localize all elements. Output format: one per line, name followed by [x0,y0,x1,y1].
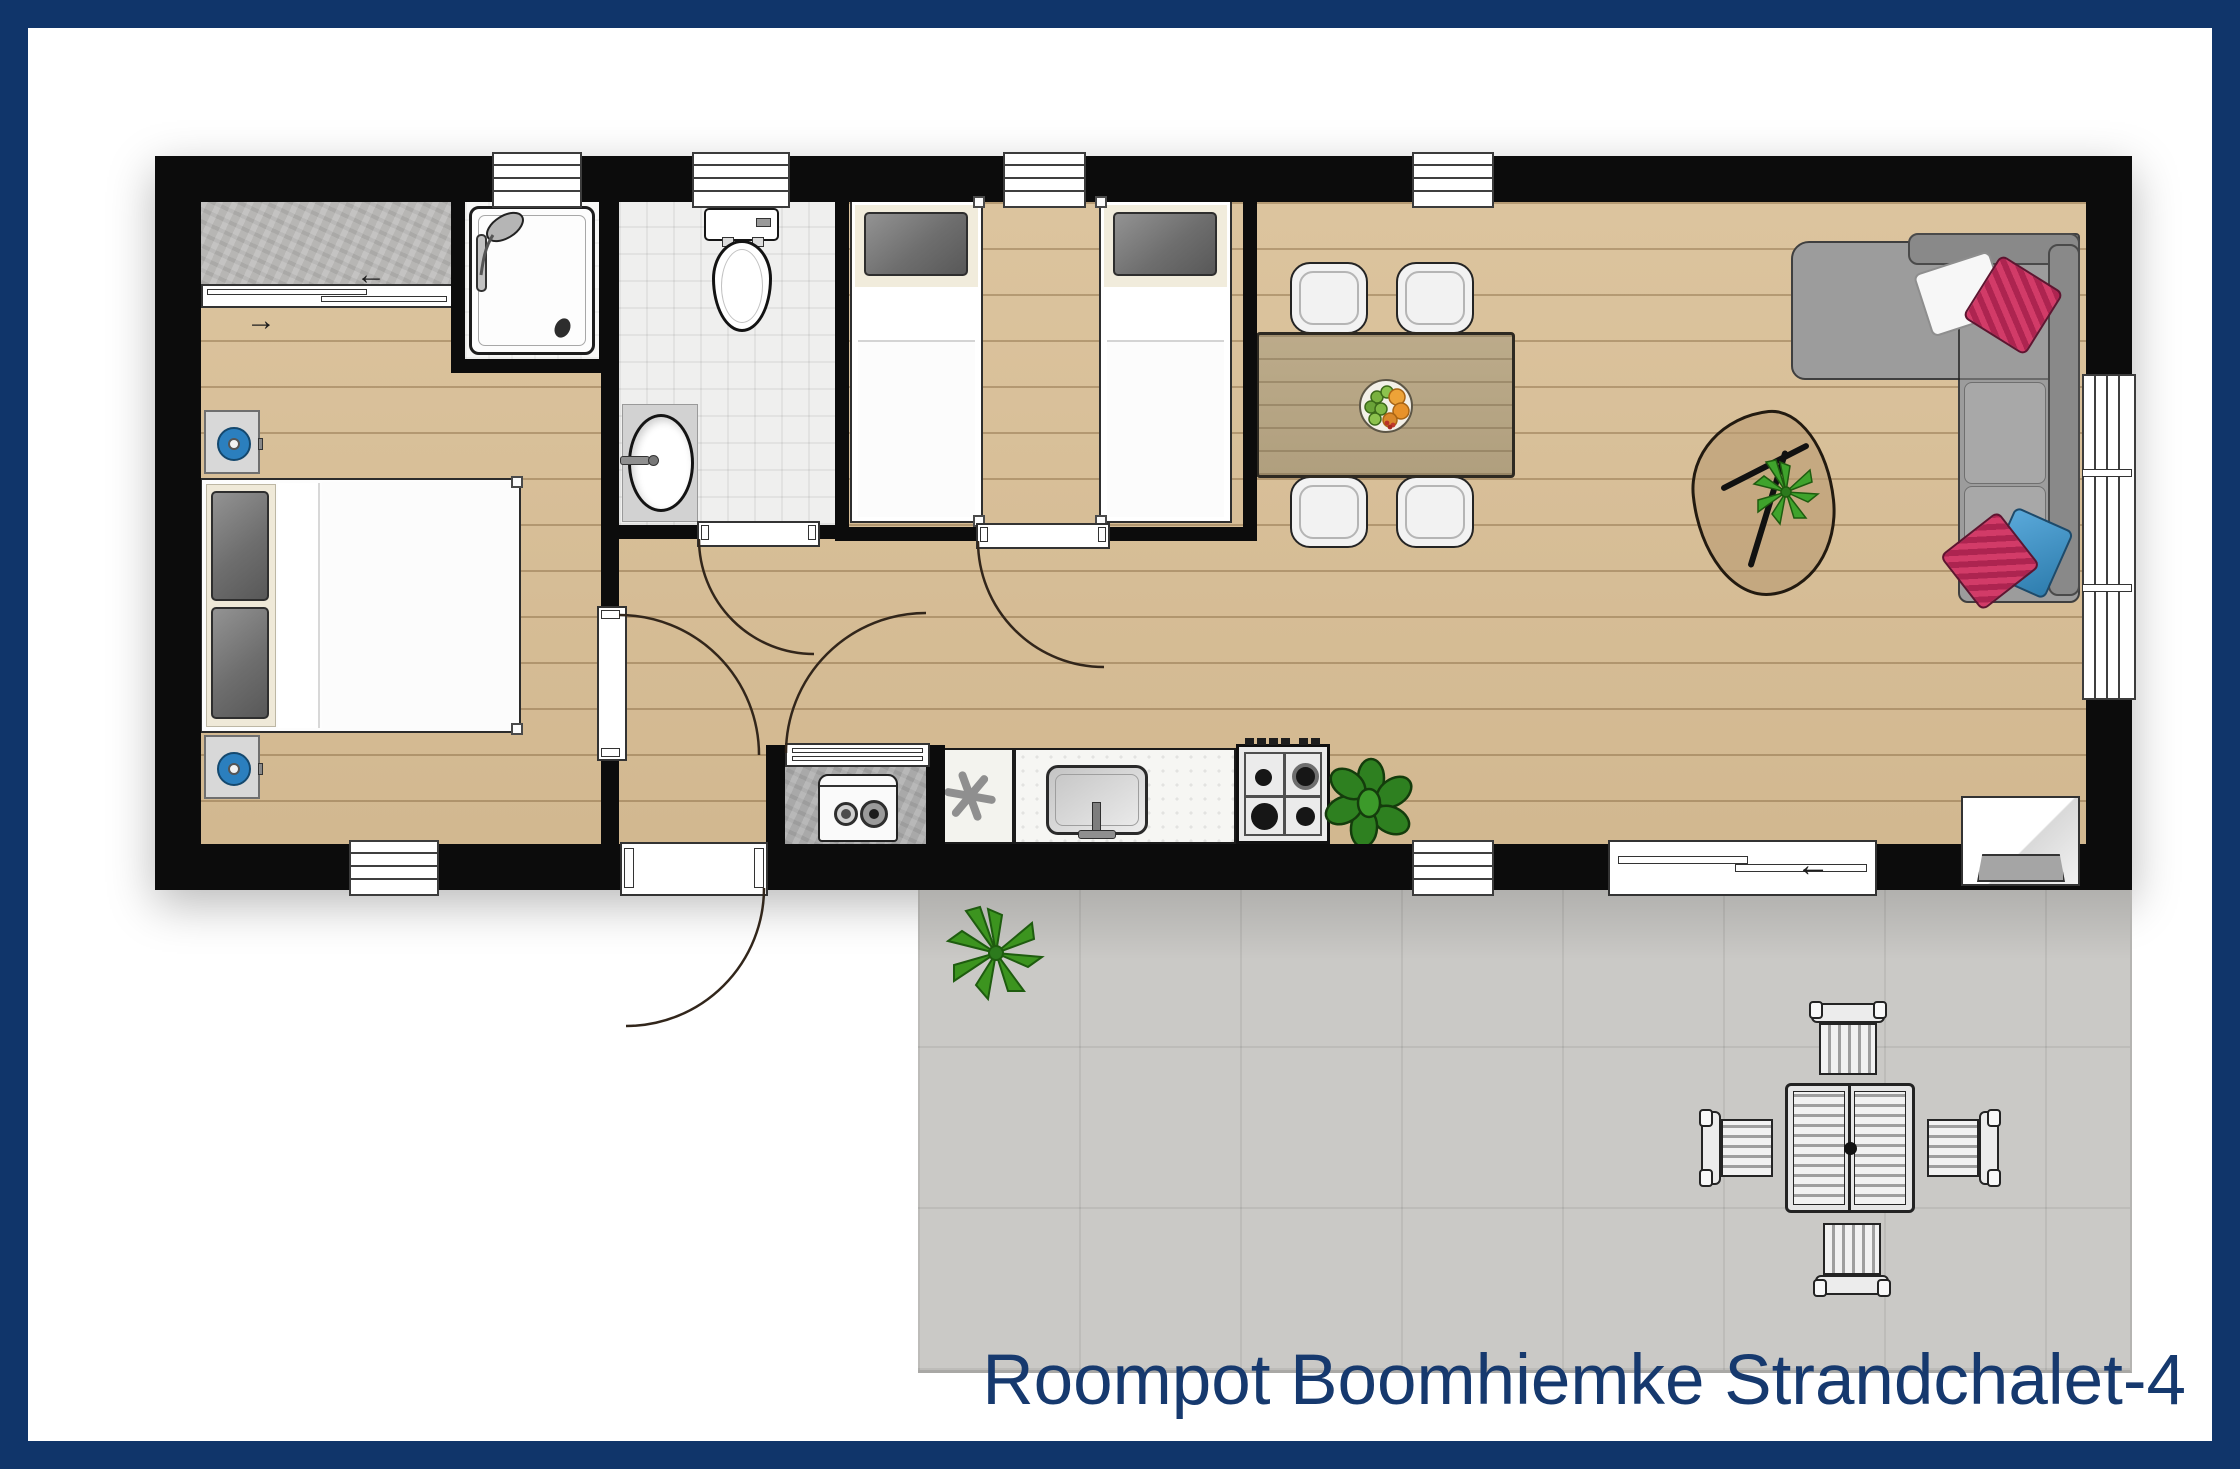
bed-post [511,476,523,488]
coffee-table-plant-icon [1750,456,1822,528]
nightstand-knob [258,763,263,775]
kitchen-counter [1014,748,1236,844]
tv-unit [1961,796,2080,886]
hob-knob [1257,738,1266,745]
boiler-port-dot [869,809,879,819]
patio-umbrella-hole [1844,1142,1857,1155]
door-jamb [1098,527,1106,542]
window-top-shower [492,152,582,208]
utility-door-swing-arc [786,613,926,753]
toilet-flush-button [756,218,771,227]
bed-post [511,723,523,735]
patio-chair-seat [1823,1223,1881,1275]
dining-chair [1396,262,1474,334]
wall-shower-bottom [451,359,619,373]
lamp-center [228,763,240,775]
shower-head-icon [471,209,541,304]
bed-sheet-fold [1107,287,1224,342]
wall-shower-right [599,202,619,373]
patio-chair-post [1987,1169,2001,1187]
hob-knob [1269,738,1278,745]
closet-slide-right-arrow-icon: → [246,306,276,336]
sofa-cushion [1964,382,2046,484]
patio-table-panel [1854,1091,1906,1205]
window-bottom-bedroom1 [349,840,439,896]
window-bottom-kitchen [1412,840,1494,896]
chair-seat [1299,271,1359,325]
bed-duvet [322,482,516,730]
patio-table [1785,1083,1915,1213]
window-right-mullion [2082,584,2132,592]
single-bed [850,200,983,523]
nightstand [204,735,260,799]
hob-burner [1251,803,1278,830]
patio-sliding-door [1608,840,1877,896]
wall-bedroom2-bottom-right [1104,527,1257,541]
bedroom1-door-swing-arc [619,615,759,755]
bed-duvet [858,342,975,517]
bed-pillow [1113,212,1217,276]
hob-burner [1296,807,1315,826]
bed-duvet [1107,342,1224,517]
lamp-center [228,438,240,450]
chair-seat [1405,485,1465,539]
door-jamb [980,527,988,542]
kitchen-plant-icon [1328,762,1414,848]
boiler [818,774,898,842]
wall-left [155,156,201,890]
closet-sliding-door-panel [321,296,447,302]
wall-bedroom2-living [1243,202,1257,541]
hob-burner [1292,763,1319,790]
bed-pillow [211,607,269,719]
boiler-cap-line [820,785,896,787]
patio-table-panel [1793,1091,1845,1205]
hob-grid-cross-v [1283,752,1286,836]
patio-chair-post [1877,1279,1891,1297]
fruit-bowl-icon [1357,377,1415,435]
toilet-seat [721,249,763,323]
sink-faucet-tip [648,455,659,466]
bed-sheet-fold [278,483,320,728]
closet-sliding-door-panel [207,289,367,295]
bed-sheet-fold [858,287,975,342]
front-door-jamb [624,848,634,888]
sofa-seam [1958,378,2048,380]
window-top-bathroom [692,152,790,208]
door-jamb [601,610,620,619]
front-door-jamb [754,848,764,888]
chair-seat [1299,485,1359,539]
dining-chair [1290,476,1368,548]
dining-chair [1290,262,1368,334]
hob-knob [1281,738,1290,745]
bed-post [973,196,985,208]
wall-shower-left [451,202,465,373]
closet-slide-left-arrow-icon: ← [356,260,386,290]
toilet-cistern [704,208,779,241]
window-top-dining [1412,152,1494,208]
tv-unit-tray [1977,854,2065,882]
patio-chair-seat [1927,1119,1979,1177]
patio-chair-seat [1721,1119,1773,1177]
patio-chair-post [1813,1279,1827,1297]
patio-chair-post [1699,1109,1713,1127]
boiler-port-dot [841,809,851,819]
closet-sliding-door-track [201,284,455,308]
hob-knob [1245,738,1254,745]
patio-chair-post [1987,1109,2001,1127]
window-right-mullion [2082,469,2132,477]
patio-chair-seat [1819,1023,1877,1075]
patio-chair-post [1873,1001,1887,1019]
bedroom2-door-swing-arc [978,541,1104,667]
door-jamb [601,748,620,757]
utility-door-panel [792,756,923,761]
patio-slide-arrow-icon: ← [1796,848,1830,882]
gas-hob [1236,744,1330,844]
patio-chair-post [1699,1169,1713,1187]
hob-burner [1255,769,1272,786]
bed-pillow [864,212,968,276]
single-bed [1099,200,1232,523]
patio-chair [1811,1003,1885,1077]
floorplan-page: ← → ← [0,0,2240,1469]
wall-bedroom1-hall-lower [601,755,619,844]
kitchen-faucet-base [1078,830,1116,839]
double-bed [200,478,521,733]
bed-post [1095,196,1107,208]
wall-utility-left [766,745,785,844]
patio-chair-post [1809,1001,1823,1019]
wall-top [155,156,2132,202]
wall-bathroom-bottom-left [605,525,699,539]
nightstand [204,410,260,474]
window-right-living [2082,374,2136,700]
plan-title: Roompot Boomhiemke Strandchalet-4 [982,1340,2186,1421]
dining-chair [1396,476,1474,548]
door-jamb [701,525,709,540]
wall-bedroom1-hall-upper [601,373,619,608]
terrace-plant-icon [944,901,1048,1005]
wall-bathroom-bedroom2 [835,202,849,539]
wardrobe-closet-floor [201,202,451,284]
sink-faucet [620,456,650,465]
front-door-swing-arc [626,888,764,1026]
wall-bedroom2-bottom-left [835,527,978,541]
patio-chair [1815,1221,1889,1295]
bed-pillow [211,491,269,601]
hob-knob [1299,738,1308,745]
window-top-bedroom2 [1003,152,1086,208]
hob-grid-cross-h [1244,795,1322,798]
door-jamb [808,525,816,540]
patio-chair [1925,1111,1999,1185]
nightstand-knob [258,438,263,450]
chair-seat [1405,271,1465,325]
patio-sliding-door-panel [1618,856,1748,864]
patio-chair [1701,1111,1775,1185]
hob-knob [1311,738,1320,745]
